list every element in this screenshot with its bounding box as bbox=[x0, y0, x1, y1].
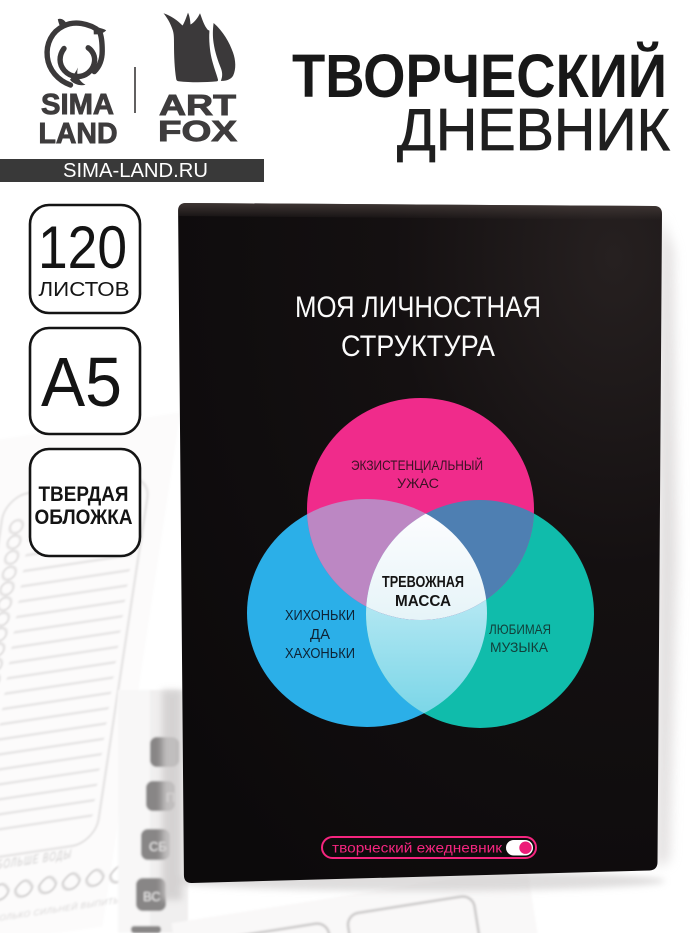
svg-text:ВС: ВС bbox=[143, 889, 161, 904]
svg-text:FOX: FOX bbox=[158, 116, 238, 148]
svg-text:УЖАС: УЖАС bbox=[397, 475, 439, 491]
svg-text:ЭКЗИСТЕНЦИАЛЬНЫЙ: ЭКЗИСТЕНЦИАЛЬНЫЙ bbox=[351, 456, 483, 473]
svg-text:МОЯ ЛИЧНОСТНАЯ: МОЯ ЛИЧНОСТНАЯ bbox=[295, 291, 541, 324]
svg-text:ТВЕРДАЯ: ТВЕРДАЯ bbox=[39, 483, 129, 506]
svg-text:SIMA-LAND.RU: SIMA-LAND.RU bbox=[63, 160, 208, 182]
svg-text:МУЗЫКА: МУЗЫКА bbox=[490, 639, 549, 655]
svg-text:SIMA: SIMA bbox=[41, 89, 114, 121]
svg-text:ЛИСТОВ: ЛИСТОВ bbox=[39, 279, 130, 301]
svg-text:ОБЛОЖКА: ОБЛОЖКА bbox=[35, 506, 133, 529]
svg-text:творческий ежедневник: творческий ежедневник bbox=[332, 841, 502, 856]
svg-text:120: 120 bbox=[38, 214, 127, 281]
svg-text:А5: А5 bbox=[41, 343, 122, 421]
svg-text:ТРЕВОЖНАЯ: ТРЕВОЖНАЯ bbox=[382, 574, 464, 591]
svg-text:МАССА: МАССА bbox=[395, 593, 451, 610]
svg-text:ДНЕВНИК: ДНЕВНИК bbox=[397, 97, 671, 163]
svg-text:ЛЮБИМАЯ: ЛЮБИМАЯ bbox=[489, 621, 551, 637]
svg-text:СТРУКТУРА: СТРУКТУРА bbox=[341, 330, 495, 363]
svg-text:ХИХОНЬКИ: ХИХОНЬКИ bbox=[285, 607, 355, 624]
svg-text:ХАХОНЬКИ: ХАХОНЬКИ bbox=[285, 645, 355, 662]
svg-text:ДА: ДА bbox=[310, 626, 330, 643]
svg-text:LAND: LAND bbox=[39, 118, 118, 150]
